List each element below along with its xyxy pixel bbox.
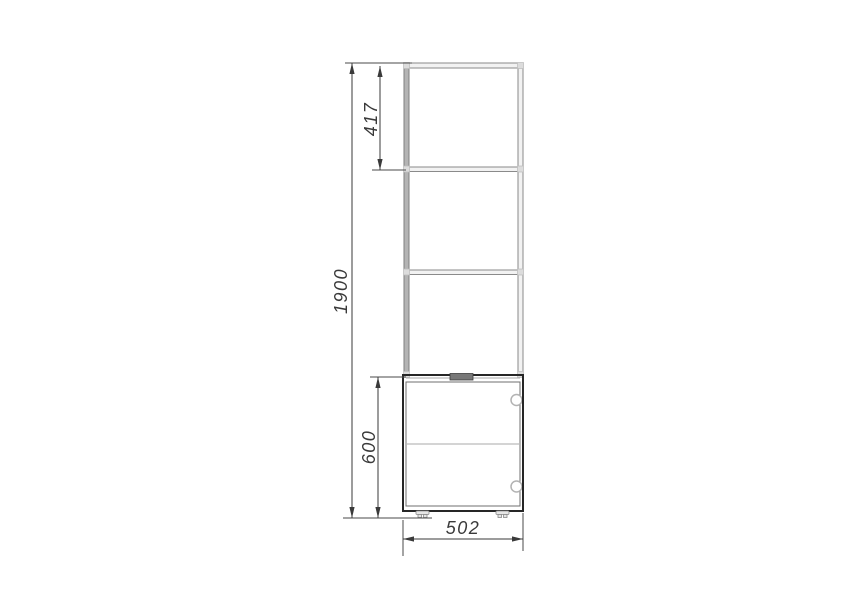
joint-cap: [518, 269, 524, 275]
dimension-label-lower-section: 600: [359, 430, 379, 465]
arrow-up-icon: [375, 377, 380, 388]
door-handle: [450, 374, 473, 381]
dimension-label-width: 502: [446, 518, 481, 538]
right-side-panel: [518, 63, 523, 377]
foot-plate: [496, 511, 509, 515]
joint-cap: [518, 63, 524, 69]
arrow-up-icon: [349, 63, 354, 74]
technical-drawing-canvas: 1900 417 600 502: [0, 0, 856, 611]
lower-door-cabinet: [403, 374, 523, 518]
arrow-down-icon: [377, 159, 382, 170]
arrow-up-icon: [377, 66, 382, 77]
foot-pad: [424, 515, 428, 518]
shelf-lower: [409, 270, 518, 275]
dimension-lower-section: 600: [359, 377, 406, 518]
foot-pad: [498, 515, 502, 518]
left-side-panel: [404, 63, 409, 377]
foot-left: [416, 511, 429, 518]
joint-cap: [518, 166, 524, 172]
shelf-upper: [409, 167, 518, 172]
arrow-down-icon: [349, 507, 354, 518]
arrow-down-icon: [375, 507, 380, 518]
dimension-label-upper-section: 417: [361, 102, 381, 137]
foot-pad: [418, 515, 422, 518]
foot-right: [496, 511, 509, 518]
foot-pad: [504, 515, 508, 518]
hinge-top-icon: [511, 395, 522, 406]
joint-cap: [404, 166, 410, 172]
arrow-right-icon: [512, 536, 523, 541]
joint-cap: [404, 269, 410, 275]
cabinet-dimension-drawing: 1900 417 600 502: [0, 0, 856, 611]
upper-shelf-unit: [404, 63, 524, 378]
dimension-upper-section: 417: [361, 66, 406, 170]
arrow-left-icon: [403, 536, 414, 541]
hinge-bottom-icon: [511, 481, 522, 492]
dimension-label-total-height: 1900: [331, 268, 351, 314]
top-panel: [404, 63, 523, 68]
dimension-width: 502: [403, 513, 523, 556]
foot-plate: [416, 511, 429, 515]
